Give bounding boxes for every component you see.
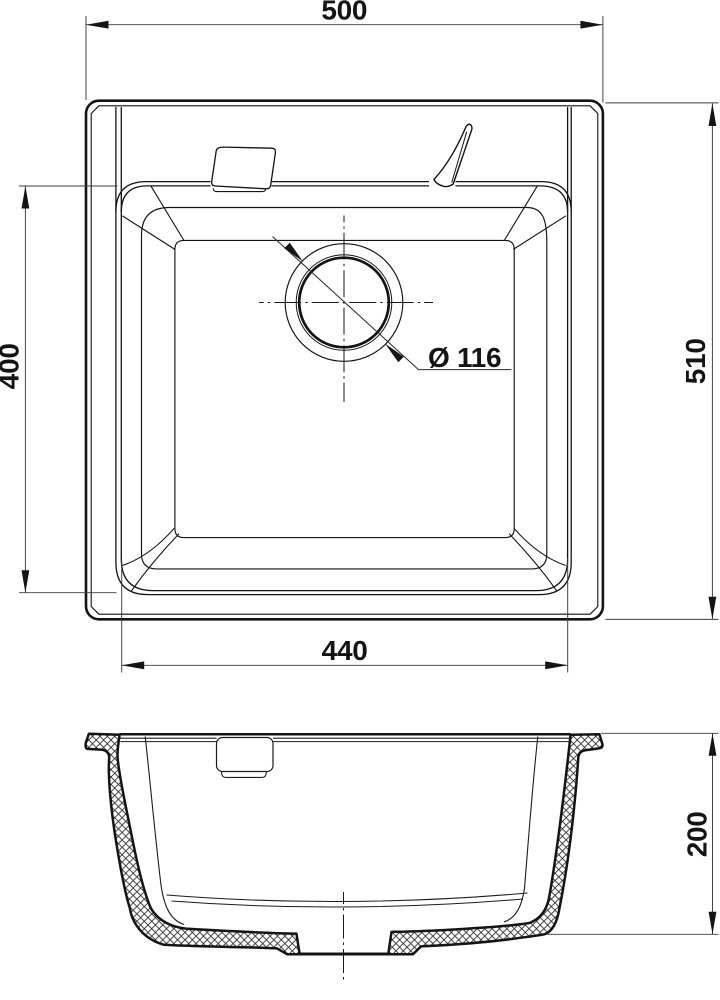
svg-text:400: 400	[0, 343, 25, 389]
svg-text:Ø 116: Ø 116	[428, 342, 501, 373]
svg-text:510: 510	[680, 338, 711, 384]
svg-text:500: 500	[321, 0, 367, 26]
svg-text:200: 200	[681, 811, 712, 857]
svg-text:440: 440	[322, 635, 368, 666]
